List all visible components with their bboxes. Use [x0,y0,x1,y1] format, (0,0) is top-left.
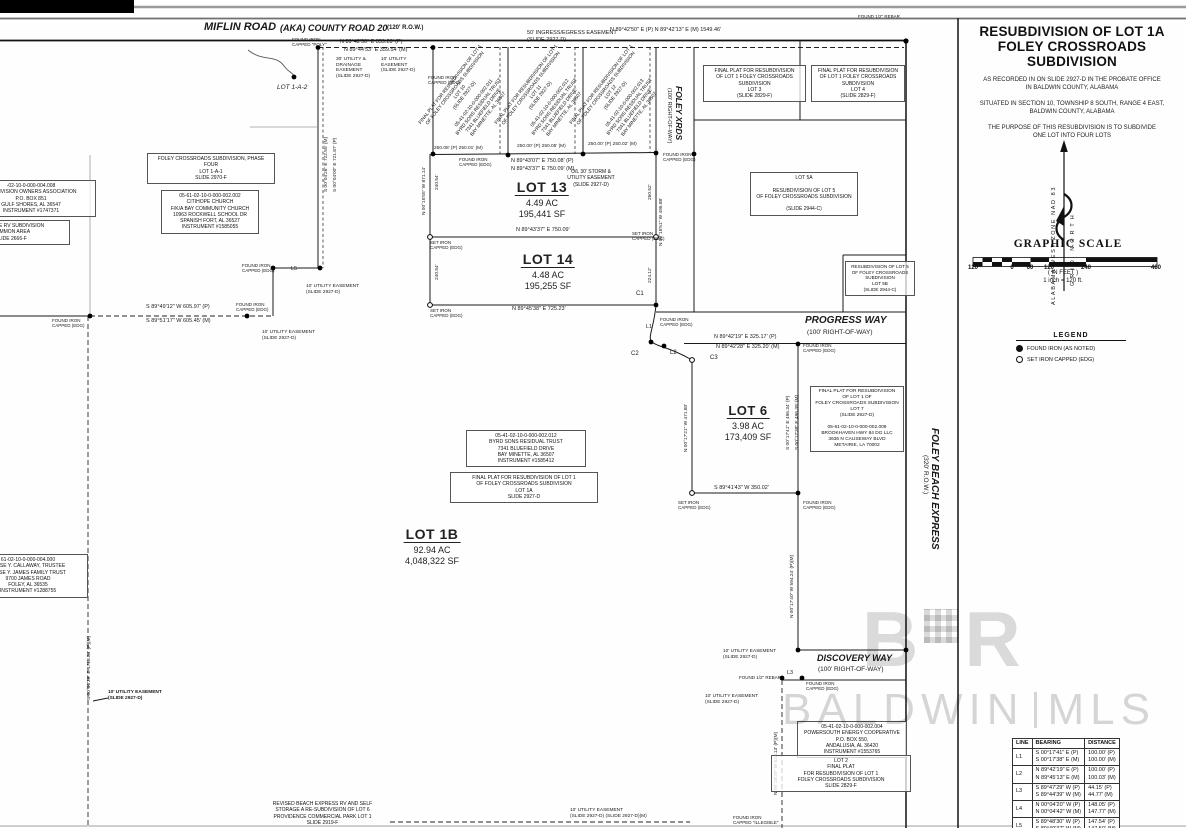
james-trust-box: 61-02-10-0-000-004.000JESSE Y. CALLAWAY,… [0,554,88,598]
road-label: PROGRESS WAY [805,315,887,327]
map-label: S 89°49'12" W 605.97' (P) [146,304,210,310]
phase-four-box: FOLEY CROSSROADS SUBDIVISION, PHASE FOUR… [147,153,275,184]
map-label: FOUND IRONCAPPED (EDG) [803,343,836,354]
map-label: 224.12' [648,267,654,283]
map-label: L1 [646,324,652,330]
map-label: 240.54' [435,264,441,280]
map-label: N 00°15'51" W 496.88' [659,198,665,246]
line-table-row: L5S 89°48'30" W (P) S 89°49'37" W (M)147… [1013,818,1120,828]
map-label: FOUND IRONCAPPED (EDG) [52,318,85,329]
road-label: (100' RIGHT-OF-WAY) [818,666,884,674]
location-note: SITUATED IN SECTION 10, TOWNSHIP 8 SOUTH… [958,100,1186,117]
map-label: N 89°43'07" E 750.08' (P) [511,158,574,164]
lot7-plat-box: FINAL PLAT FOR RESUBDIVISIONOF LOT 1 OFF… [810,386,904,452]
road-label: (120' R.O.W.) [387,25,423,32]
map-label: S 00°04'00" E 721.87' (P) [333,138,339,192]
lot5a-box: LOT 5A RESUBDIVISION OF LOT 5OF FOLEY CR… [750,172,858,216]
plat-title-line1: RESUBDIVISION OF LOT 1A [958,24,1186,39]
lot-label-lot-14: LOT 144.48 AC195,255 SF [521,251,575,291]
map-label: 10' UTILITYEASEMENT(SLIDE 2927-D) [381,57,415,74]
road-label: (100' RIGHT-OF-WAY) [807,329,873,337]
road-label: DISCOVERY WAY [817,653,892,664]
road-label: FOLEY BEACH EXPRESS [928,428,940,550]
line-table-row: L4N 00°04'20" W (P) N 00°04'42" W (M)148… [1013,800,1120,817]
line-table: LINEBEARINGDISTANCEL1S 00°17'41" E (P) S… [1012,738,1120,828]
plat-title-line2: FOLEY CROSSROADS SUBDIVISION [958,39,1186,69]
map-label: LOT 1-A-2 [277,84,307,92]
road-label: (320' R.O.W.) [921,455,929,494]
legend-items: FOUND IRON (AS NOTED)SET IRON CAPPED (ED… [1016,345,1126,363]
map-label: FOUND IRONCAPPED (EDG) [806,681,839,692]
map-label: S 00°17'39" E 496.39' (M) [795,395,801,450]
lot-label-lot-13: LOT 134.49 AC195,441 SF [515,179,569,219]
legend-item: FOUND IRON (AS NOTED) [1016,345,1126,352]
map-label: N 89°42'50" E 359.20' (P) [340,39,403,45]
lot5b-box: RESUBDIVISION OF LOT 5OF FOLEY CROSSROAD… [845,261,915,296]
map-label: FOUND 1/2" REBAR [858,14,900,19]
road-label: FOLEY XRDS [674,86,684,140]
map-label: FOUND IRONCAPPED (EDG) [660,317,693,328]
map-label: FOUND IRONCAPPED (EDG) [803,500,836,511]
map-label: S 00°00'29" E 1713.34' (P)(M) [87,636,93,700]
map-label: FOUND IRONCAPPED (EDG) [663,152,696,163]
map-label: 10' UTILITY EASEMENT(SLIDE 2927-D) [108,690,162,701]
map-label: 10' UTILITY EASEMENT(SLIDE 2927-D) [723,649,776,660]
map-label: N 89°44'53" E 359.54' (M) [344,47,407,53]
map-label: 260.52' [648,184,654,200]
graphic-scale-units: ( IN FEET ) [1003,270,1123,276]
map-label: N 00°17'40" W 594.24' (P)(M) [790,555,796,618]
purpose-note: THE PURPOSE OF THIS RESUBDIVISION IS TO … [958,124,1186,141]
map-label: N 00°17'21" W 471.80' [684,404,690,452]
lot2-plat-box: LOT 2FINAL PLATFOR RESUBDIVISION OF LOT … [771,755,911,792]
map-label: 10' UTILITY EASEMENT(SLIDE 2927-D) [705,694,758,705]
map-label: SET IRONCAPPED (EDG) [430,240,463,251]
map-label: N 89°42'50" E (P) N 89°42'13" E (M) 1549… [610,27,721,33]
map-label: S 89°41'43" W 350.02' [714,485,769,491]
lot3-plat-box: FINAL PLAT FOR RESUBDIVISIONOF LOT 1 FOL… [703,65,806,102]
road-label: (AKA) COUNTY ROAD 20 [280,23,387,34]
map-label: S 00°17'41" E 496.34' (P) [786,396,792,450]
map-label: S 00°04'26" E 722.55' (M) [324,137,330,192]
plat-sheet: FOUND IRONCAPPED "POLY"N 89°42'50" E 359… [0,0,1186,828]
map-label: 10' UTILITY EASEMENT(SLIDE 2927-D) (SLID… [570,808,647,819]
revised-beach-box: REVISED BEACH EXPRESS RV AND SELFSTORAGE… [250,801,395,826]
line-table-header: LINE [1013,739,1033,749]
line-table-row: L3S 89°47'29" W (P) S 89°44'39" W (M)44.… [1013,783,1120,800]
map-label: 10' UTILITY EASEMENT(SLIDE 2927-D) [306,284,359,295]
citihope-church-box: 05-61-02-10-0-000-002.002CITIHOPE CHURCH… [161,190,259,234]
map-label: SET IRONCAPPED (EDG) [430,308,463,319]
map-label: N 89°42'19" E 325.17' (P) [714,334,777,340]
map-label: SET IRONCAPPED (EDG) [678,500,711,511]
map-label: C1 [636,291,644,298]
map-label: C2 [631,351,639,358]
map-label: N 89°45'38" E 725.23' [512,306,566,312]
map-label: 10' UTILITY EASEMENT(SLIDE 2927-D) [262,330,315,341]
road-label: MIFLIN ROAD [204,21,276,34]
lot4-plat-box: FINAL PLAT FOR RESUBDIVISIONOF LOT 1 FOL… [811,65,905,102]
map-label: FOUND IRONCAPPED "POLY" [292,37,327,48]
road-label: (100' RIGHT-OF-WAY) [666,88,672,143]
owners-association-box: -02-10-0-000-004.008SUBDIVISION OWNERS A… [0,180,96,217]
powersouth-box: 05-41-02-10-0-000-002.004POWERSOUTH ENER… [797,721,907,758]
byrd-sons-box: 05-41-02-10-0-000-002.012BYRD SONS RESID… [466,430,586,467]
map-label: L2 [670,350,677,357]
map-label: S 89°51'17" W 605.45' (M) [146,318,211,324]
graphic-scale-title: GRAPHIC SCALE [998,238,1138,250]
map-label: FOUND IRONCAPPED (EDG) [236,302,269,313]
filled-circle-icon [1016,345,1023,352]
line-table-header: DISTANCE [1085,739,1120,749]
map-label: 30' UTILITY &DRAINAGEEASEMENT(SLIDE 2927… [336,57,370,80]
legend-item: SET IRON CAPPED (EDG) [1016,356,1126,363]
map-label: 240.54' [435,174,441,190]
lot1a-plat-box: FINAL PLAT FOR RESUBDIVISION OF LOT 1OF … [450,472,598,503]
map-label: FOUND 1/2" REBAR [739,675,781,680]
map-label: L5 [291,266,297,272]
title-block: RESUBDIVISION OF LOT 1A FOLEY CROSSROADS… [958,24,1186,140]
lot-label-lot-1b: LOT 1B92.94 AC4,048,322 SF [404,526,461,566]
legend-title: LEGEND [1016,332,1126,341]
scale-tick: 120 [968,265,978,271]
map-label: N 89°43'37" E 750.09' [516,227,570,233]
map-label: FOUND IRONCAPPED "ILLEGIBLE" [733,815,778,826]
map-label: N 00°15'55" W 871.14' [422,167,428,215]
map-label: C3 [710,355,718,362]
line-table-header: BEARING [1032,739,1085,749]
open-circle-icon [1016,356,1023,363]
map-label: FOUND IRONCAPPED (EDG) [242,263,275,274]
title-panel: RESUBDIVISION OF LOT 1A FOLEY CROSSROADS… [958,18,1186,828]
recording-note: AS RECORDED IN ON SLIDE 2927-D IN THE PR… [958,76,1186,93]
legend: LEGEND FOUND IRON (AS NOTED)SET IRON CAP… [1016,332,1126,363]
scale-tick: 480 [1151,265,1161,271]
line-table-row: L2N 89°42'19" E (P) N 89°45'13" E (M)100… [1013,766,1120,783]
map-label: L3 [787,670,793,676]
map-label: N 89°42'28" E 325.20' (M) [716,344,779,350]
lakeside-rv-box: LAKESIDE RV SUBDIVISIONCOMMON AREASLIDE … [0,220,70,245]
lot-label-lot-6: LOT 63.98 AC173,409 SF [725,402,772,442]
map-label: 50' INGRESS/EGRESS EASEMENT [527,30,617,36]
map-label: FOUND IRONCAPPED (EDG) [459,157,492,168]
line-table-row: L1S 00°17'41" E (P) S 00°17'38" E (M)100… [1013,749,1120,766]
graphic-scale-ratio: 1 inch = 120 ft. [1003,278,1123,284]
